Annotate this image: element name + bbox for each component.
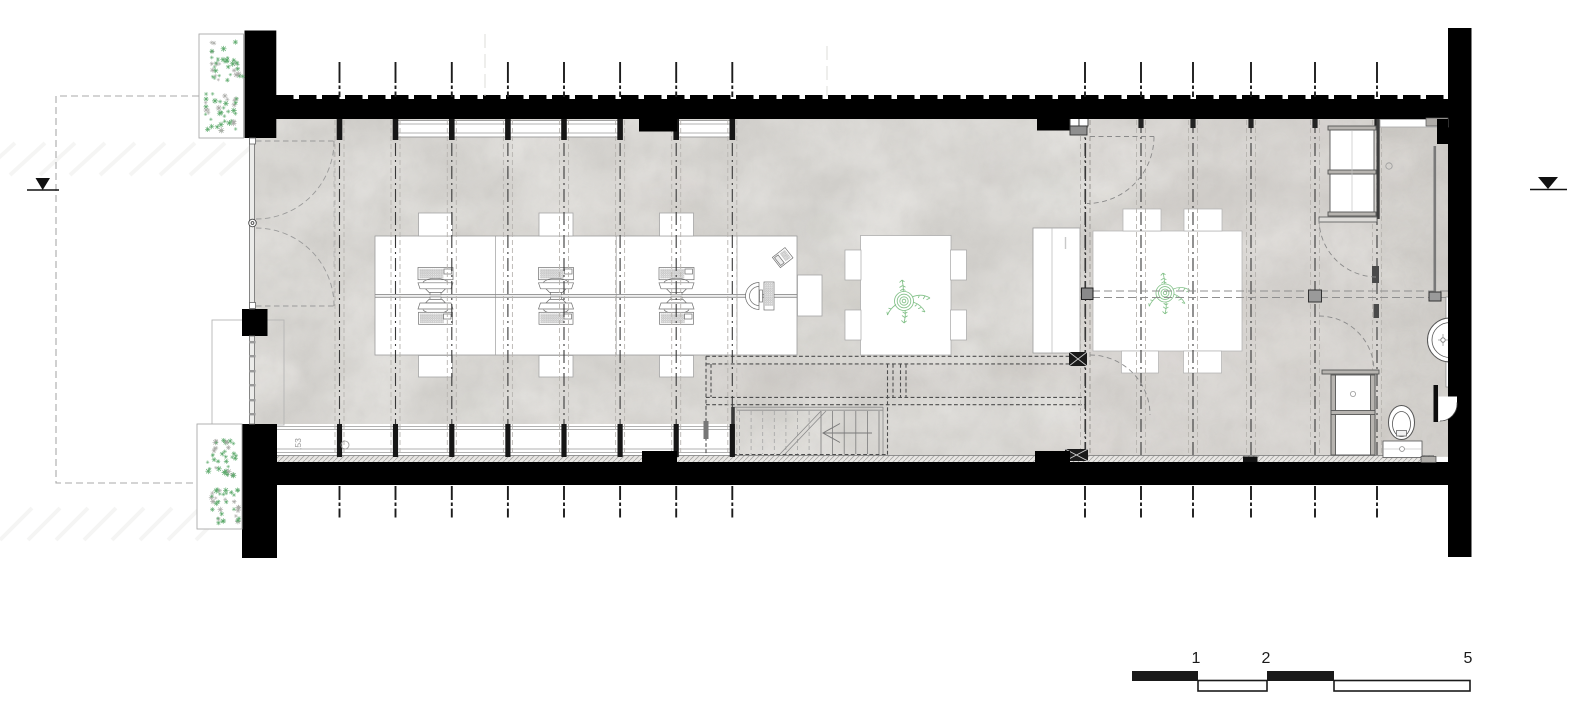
svg-text:,53: ,53 — [293, 438, 303, 450]
svg-text:2: 2 — [1262, 650, 1271, 667]
svg-text:5: 5 — [1464, 650, 1473, 667]
svg-text:1: 1 — [1192, 650, 1201, 667]
